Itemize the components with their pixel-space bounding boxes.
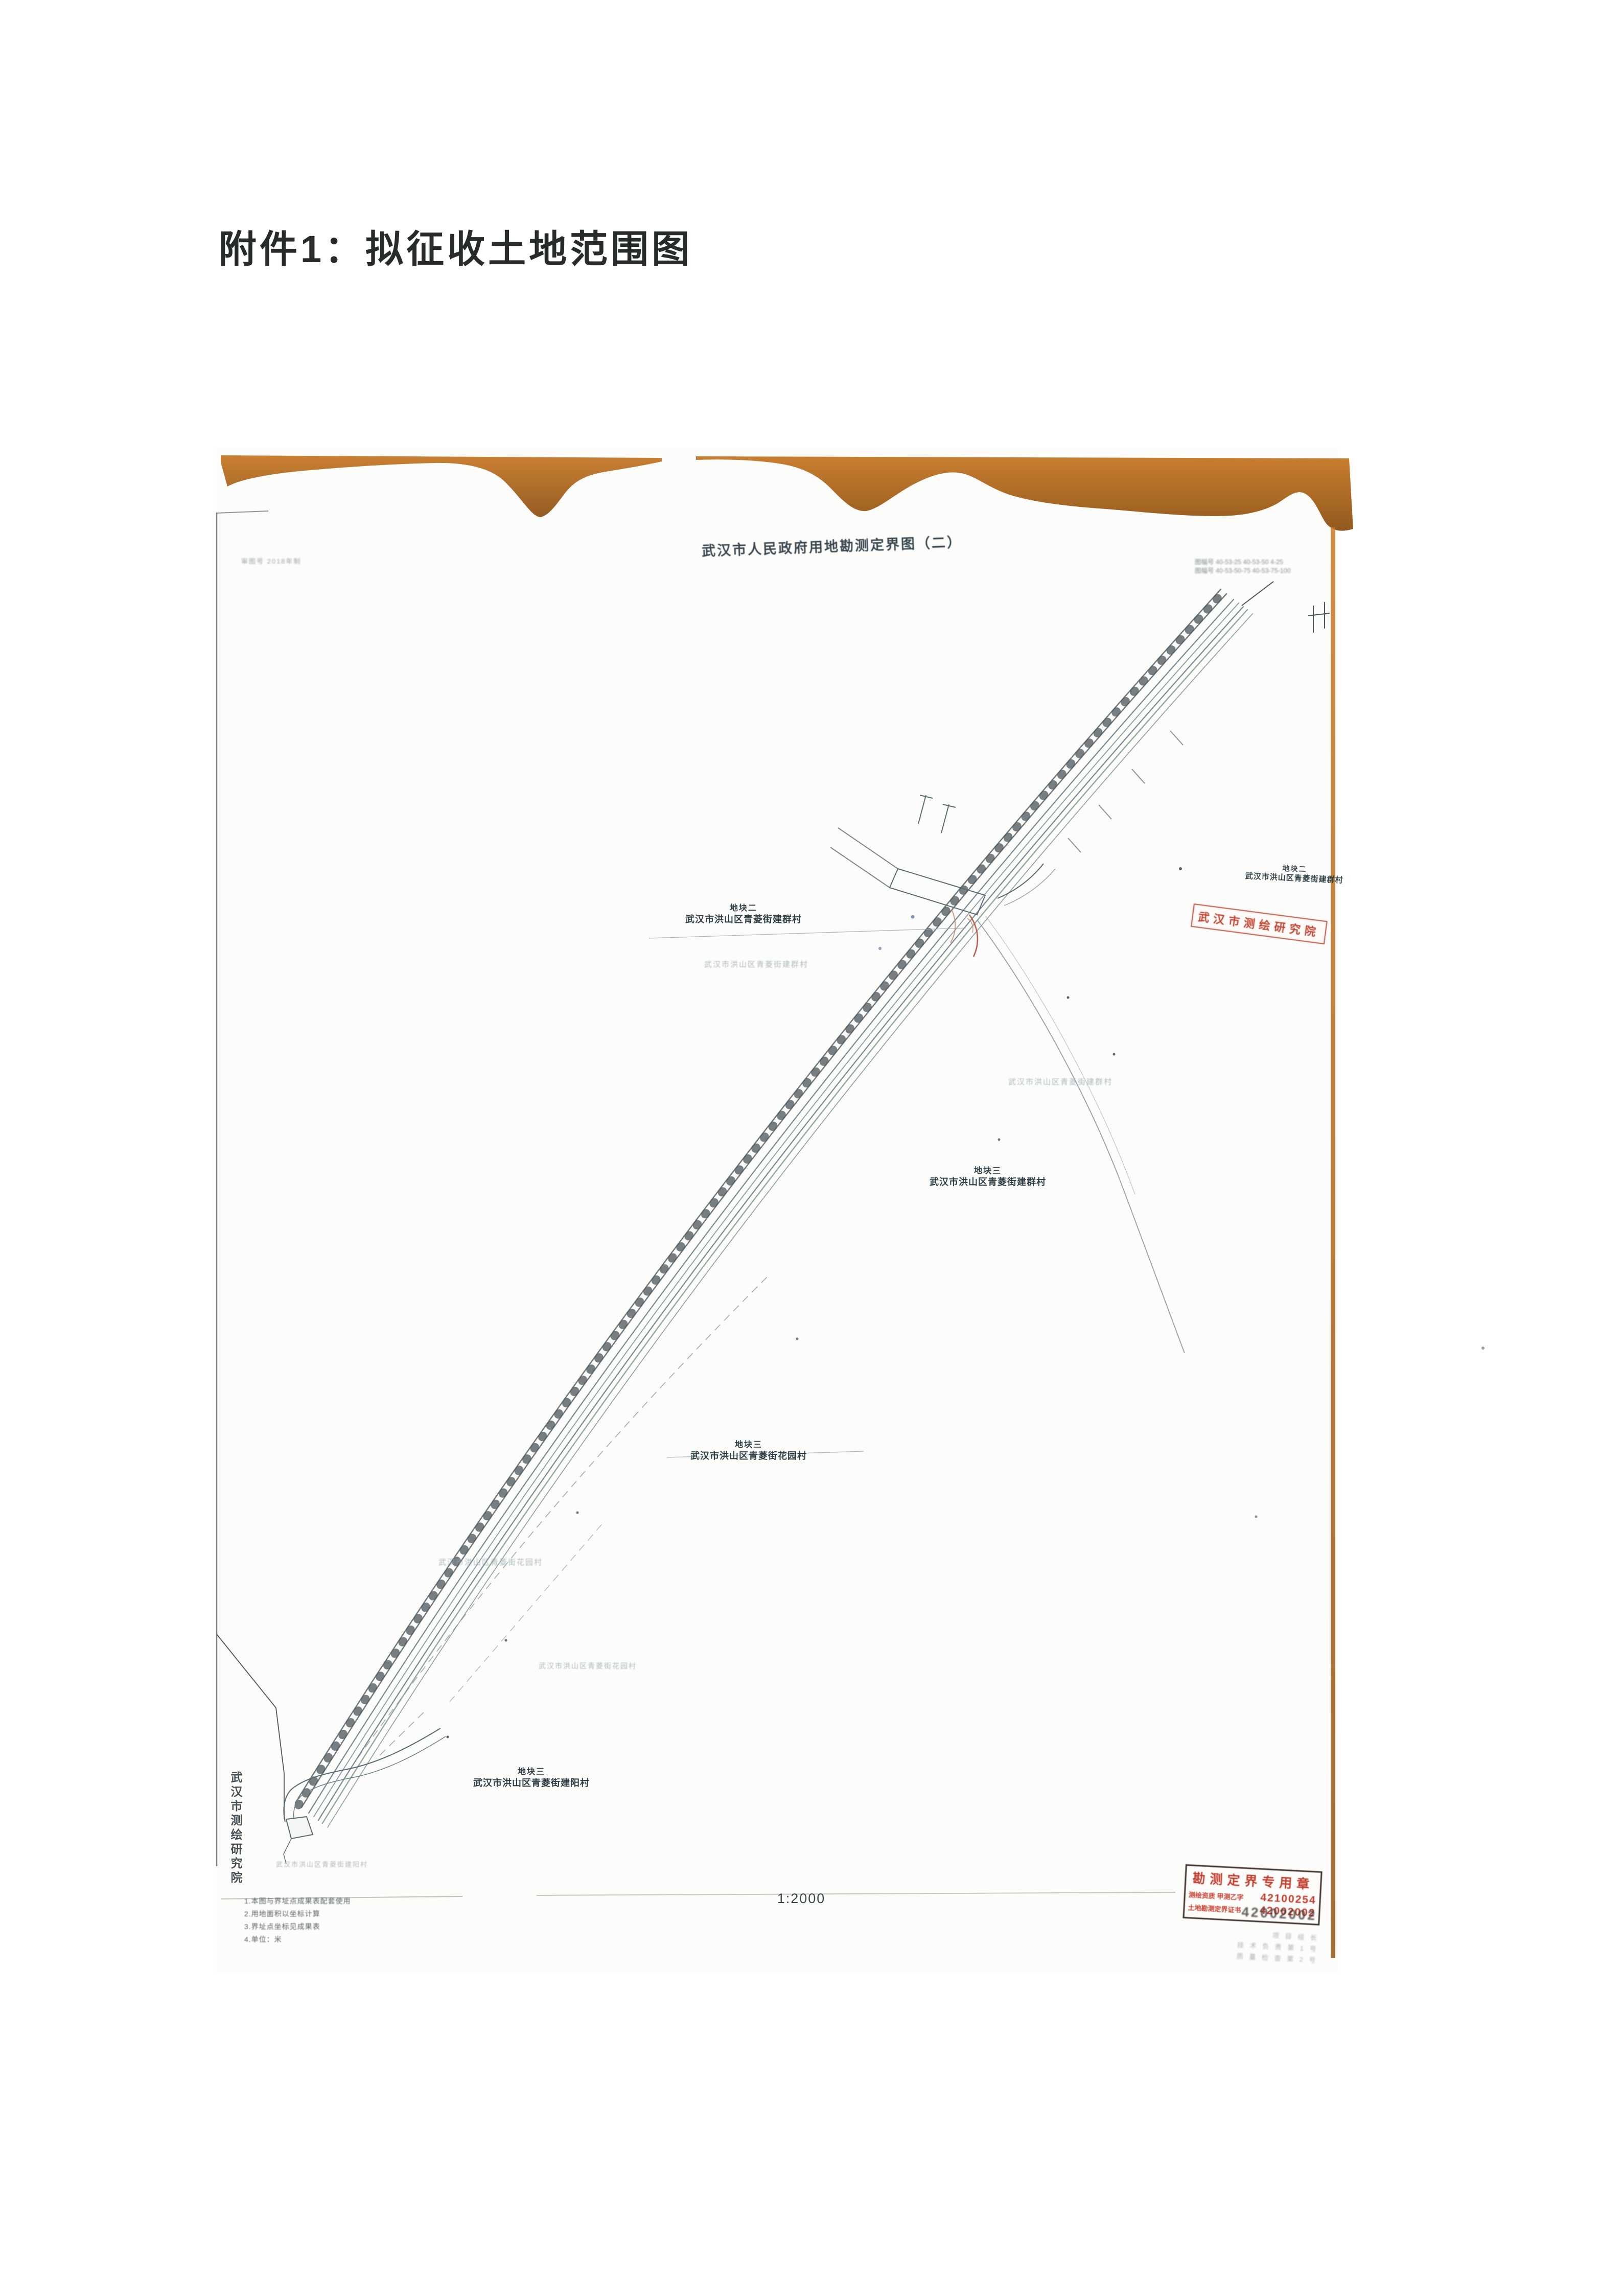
top-left-corner-tick bbox=[217, 511, 268, 513]
note-line-2: 2.用地面积以坐标计算 bbox=[244, 1908, 351, 1920]
right-border-line bbox=[1331, 527, 1335, 1958]
top-left-note: 审图号 2018年制 bbox=[241, 556, 302, 566]
faint-label-5: 武汉市洪山区青菱街建阳村 bbox=[276, 1859, 368, 1869]
plot-label-5-name: 地块三 bbox=[473, 1767, 590, 1777]
sheet-number-line2: 图幅号 40-53-50-75 40-53-75-100 bbox=[1195, 567, 1291, 575]
road-corridor bbox=[295, 589, 1253, 1827]
plot-label-1: 地块二 武汉市洪山区青菱街建群村 bbox=[685, 903, 802, 925]
certification-stamp: 勘测定界专用章 测绘资质 甲测乙字 42100254 土地勘测定界证书 4200… bbox=[1180, 1864, 1322, 1966]
certification-certificate-label: 土地勘测定界证书 bbox=[1188, 1902, 1241, 1914]
plot-label-4-village: 武汉市洪山区青菱街花园村 bbox=[690, 1450, 807, 1462]
top-right-end-marks bbox=[1242, 582, 1330, 633]
bottom-border-line-b bbox=[537, 1892, 1175, 1895]
scanned-document-page: 附件1：拟征收土地范围图 bbox=[0, 0, 1623, 2296]
faint-label-1: 武汉市洪山区青菱街建群村 bbox=[704, 959, 808, 969]
certification-qualification-label: 测绘资质 甲测乙字 bbox=[1188, 1889, 1243, 1902]
plot-label-3-name: 地块三 bbox=[930, 1166, 1046, 1176]
scale-label: 1:2000 bbox=[777, 1891, 826, 1907]
dashed-boundary-line bbox=[358, 1278, 767, 1758]
road-end-bottom-left bbox=[217, 1634, 446, 1864]
plot-label-5: 地块三 武汉市洪山区青菱街建阳村 bbox=[473, 1767, 590, 1789]
sheet-number-line1: 图幅号 40-53-25 40-53-50 4-25 bbox=[1195, 558, 1291, 567]
sheet-number-block: 图幅号 40-53-25 40-53-50 4-25 图幅号 40-53-50-… bbox=[1195, 558, 1291, 575]
plot-label-3: 地块三 武汉市洪山区青菱街建群村 bbox=[930, 1166, 1046, 1188]
label-leader-lines bbox=[478, 928, 966, 1782]
branch-road bbox=[977, 920, 1185, 1353]
plot-label-4-name: 地块三 bbox=[690, 1440, 807, 1450]
note-line-4: 4.单位：米 bbox=[244, 1933, 351, 1946]
faint-label-2: 武汉市洪山区青菱街建群村 bbox=[1008, 1076, 1112, 1087]
plot-label-4: 地块三 武汉市洪山区青菱街花园村 bbox=[690, 1440, 807, 1462]
map-notes: 1.本图与界址点成果表配套使用 2.用地面积以坐标计算 3.界址点坐标见成果表 … bbox=[244, 1895, 351, 1946]
crossing-road bbox=[830, 731, 1185, 1353]
plot-label-3-village: 武汉市洪山区青菱街建群村 bbox=[930, 1176, 1046, 1188]
faint-label-4: 武汉市洪山区青菱街花园村 bbox=[539, 1661, 637, 1671]
note-line-3: 3.界址点坐标见成果表 bbox=[244, 1920, 351, 1933]
plot-label-5-village: 武汉市洪山区青菱街建阳村 bbox=[473, 1777, 590, 1789]
plot-label-1-village: 武汉市洪山区青菱街建群村 bbox=[685, 914, 802, 925]
map-drawing bbox=[0, 0, 1623, 2296]
scan-specks bbox=[447, 867, 1485, 1738]
torn-paper-edge-right bbox=[696, 456, 1353, 531]
torn-paper-edge-left bbox=[221, 455, 662, 517]
faint-label-3: 武汉市洪山区青菱街花园村 bbox=[438, 1557, 543, 1567]
note-line-1: 1.本图与界址点成果表配套使用 bbox=[244, 1895, 351, 1908]
left-vertical-text: 武汉市测绘研究院 bbox=[227, 1771, 244, 1886]
plot-label-1-name: 地块二 bbox=[685, 903, 802, 914]
